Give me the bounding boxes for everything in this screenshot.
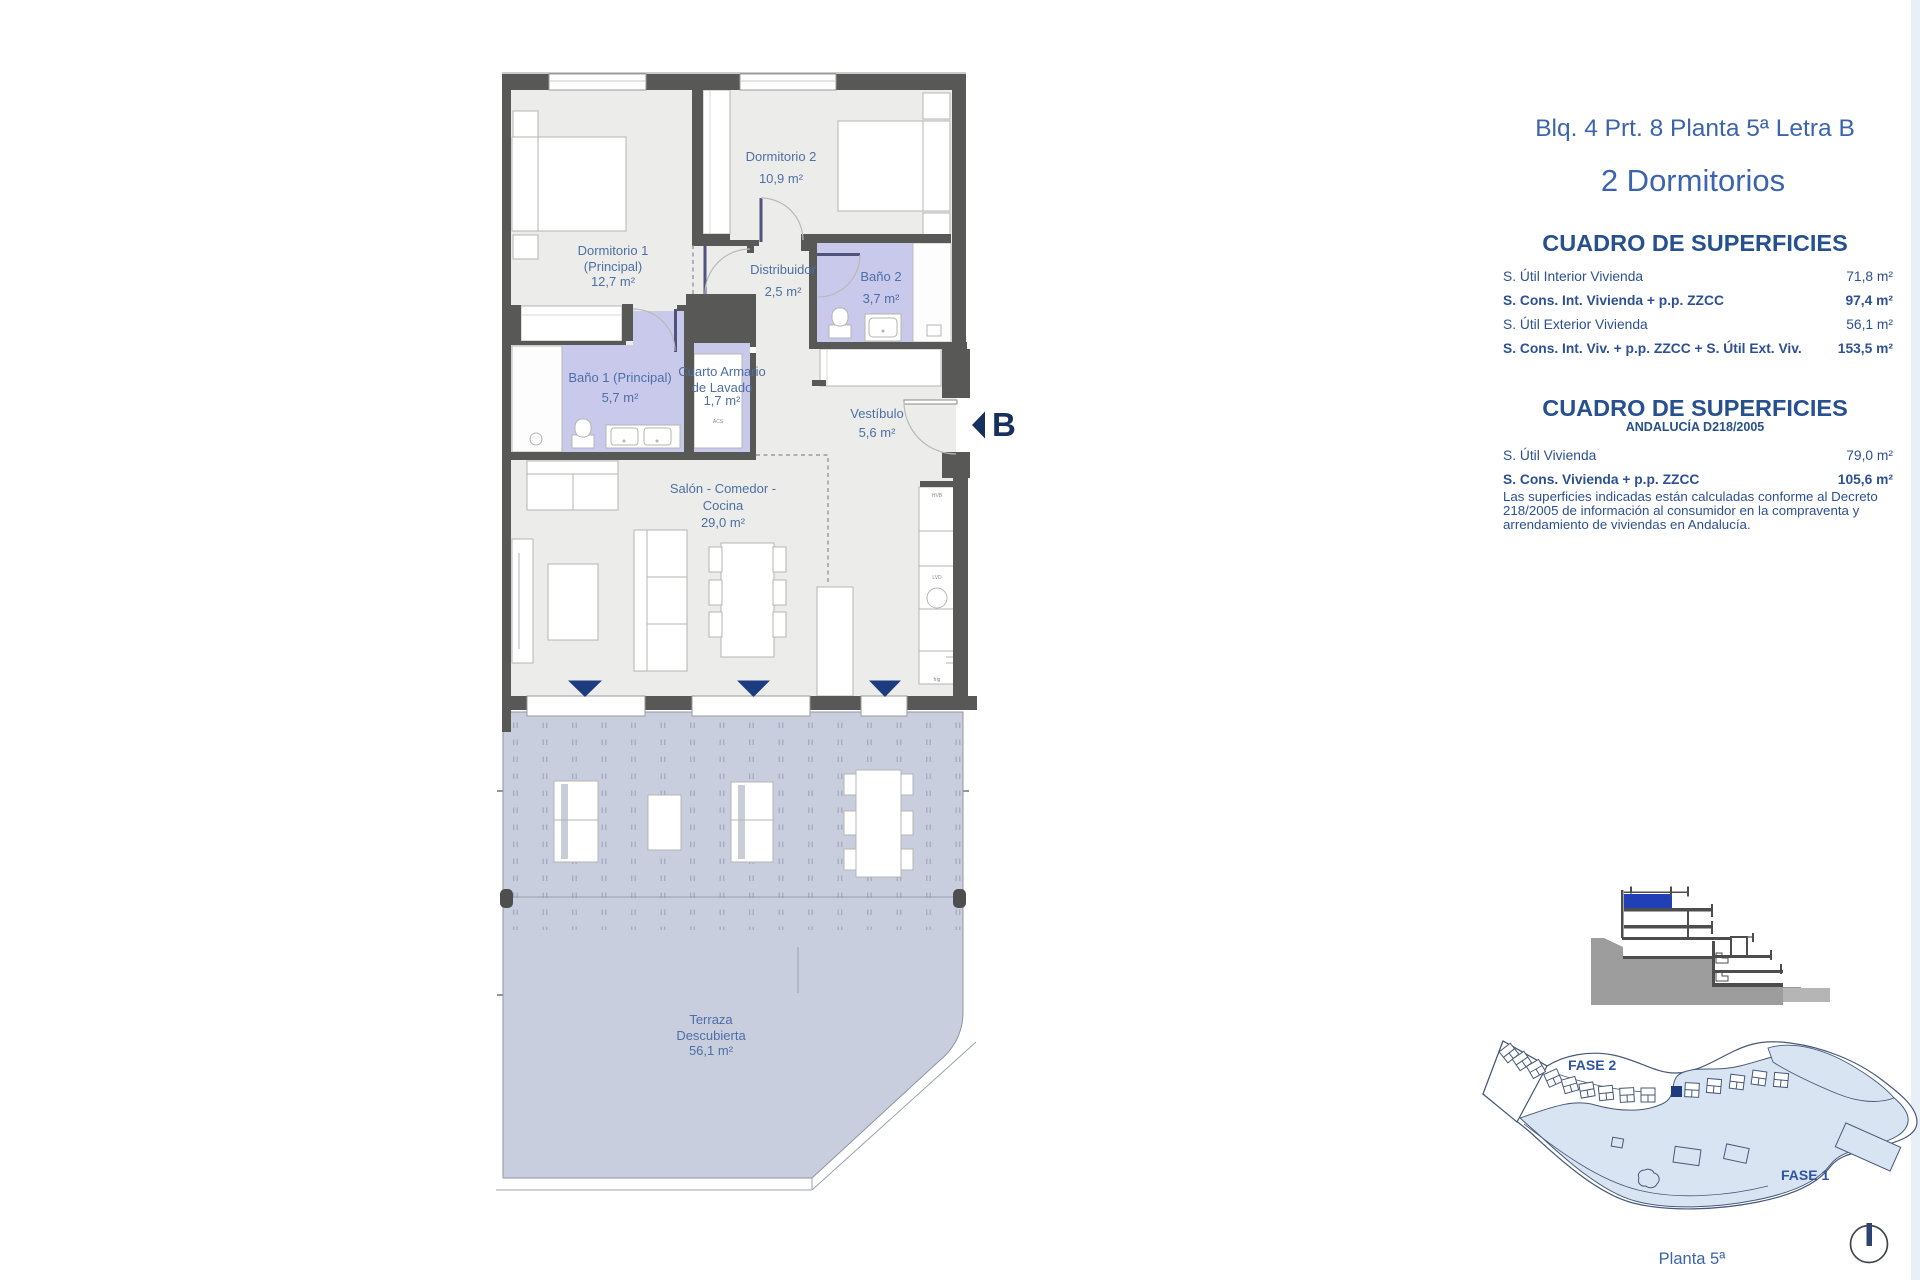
svg-text:S. Útil Interior Vivienda: S. Útil Interior Vivienda: [1503, 268, 1643, 284]
svg-text:ANDALUCÍA D218/2005: ANDALUCÍA D218/2005: [1626, 419, 1765, 434]
svg-text:(Principal): (Principal): [584, 259, 643, 274]
svg-text:Baño 1 (Principal): Baño 1 (Principal): [568, 370, 671, 385]
svg-text:Dormitorio 1: Dormitorio 1: [578, 243, 649, 258]
svg-text:1,7 m²: 1,7 m²: [704, 393, 742, 408]
svg-text:56,1 m²: 56,1 m²: [689, 1043, 734, 1058]
svg-text:2 Dormitorios: 2 Dormitorios: [1601, 163, 1785, 198]
svg-text:S. Cons. Vivienda + p.p. ZZCC: S. Cons. Vivienda + p.p. ZZCC: [1503, 472, 1699, 487]
svg-text:arrendamiento de viviendas en: arrendamiento de viviendas en Andalucía.: [1503, 517, 1751, 532]
svg-text:2,5 m²: 2,5 m²: [765, 284, 803, 299]
svg-text:Baño 2: Baño 2: [860, 269, 901, 284]
svg-text:56,1 m²: 56,1 m²: [1846, 317, 1893, 332]
svg-text:ACS: ACS: [713, 419, 724, 425]
svg-text:Terraza: Terraza: [689, 1012, 733, 1027]
svg-text:10,9 m²: 10,9 m²: [759, 171, 804, 186]
svg-text:Salón - Comedor -: Salón - Comedor -: [670, 481, 776, 496]
svg-text:B: B: [992, 406, 1016, 443]
svg-text:Las superficies indicadas está: Las superficies indicadas están calculad…: [1503, 489, 1878, 504]
svg-text:5,7 m²: 5,7 m²: [602, 390, 640, 405]
svg-text:3,7 m²: 3,7 m²: [863, 291, 901, 306]
svg-text:CUADRO DE SUPERFICIES: CUADRO DE SUPERFICIES: [1542, 395, 1848, 421]
svg-text:S. Cons. Int. Viv. + p.p. ZZCC: S. Cons. Int. Viv. + p.p. ZZCC + S. Útil…: [1503, 339, 1802, 356]
svg-text:FASE 1: FASE 1: [1781, 1167, 1829, 1183]
svg-text:153,5 m²: 153,5 m²: [1838, 341, 1894, 356]
svg-text:Cocina: Cocina: [703, 498, 744, 513]
svg-text:frig: frig: [934, 677, 941, 683]
svg-text:Blq. 4 Prt. 8 Planta 5ª Letra: Blq. 4 Prt. 8 Planta 5ª Letra B: [1535, 115, 1855, 142]
svg-text:LVD: LVD: [932, 575, 942, 581]
svg-text:HVB: HVB: [932, 493, 943, 499]
svg-text:CUADRO DE SUPERFICIES: CUADRO DE SUPERFICIES: [1542, 230, 1848, 256]
svg-text:Distribuidor: Distribuidor: [750, 262, 816, 277]
svg-text:Vestíbulo: Vestíbulo: [850, 406, 904, 421]
svg-text:71,8 m²: 71,8 m²: [1846, 269, 1893, 284]
svg-text:5,6 m²: 5,6 m²: [859, 425, 897, 440]
svg-text:97,4 m²: 97,4 m²: [1845, 293, 1893, 308]
svg-text:S. Útil Vivienda: S. Útil Vivienda: [1503, 447, 1597, 463]
svg-text:S. Cons. Int. Vivienda + p.p.: S. Cons. Int. Vivienda + p.p. ZZCC: [1503, 293, 1724, 308]
svg-text:29,0 m²: 29,0 m²: [701, 515, 746, 530]
svg-text:FASE 2: FASE 2: [1568, 1057, 1616, 1073]
svg-text:105,6 m²: 105,6 m²: [1838, 472, 1894, 487]
svg-text:12,7 m²: 12,7 m²: [591, 274, 636, 289]
svg-text:S. Útil Exterior Vivienda: S. Útil Exterior Vivienda: [1503, 316, 1648, 332]
svg-text:Descubierta: Descubierta: [676, 1028, 746, 1043]
svg-text:Cuarto Armario: Cuarto Armario: [678, 364, 765, 379]
svg-text:Dormitorio 2: Dormitorio 2: [746, 149, 817, 164]
svg-text:218/2005 de información al con: 218/2005 de información al consumidor en…: [1503, 503, 1860, 518]
svg-text:Planta 5ª: Planta 5ª: [1659, 1250, 1727, 1268]
svg-text:79,0 m²: 79,0 m²: [1846, 448, 1893, 463]
